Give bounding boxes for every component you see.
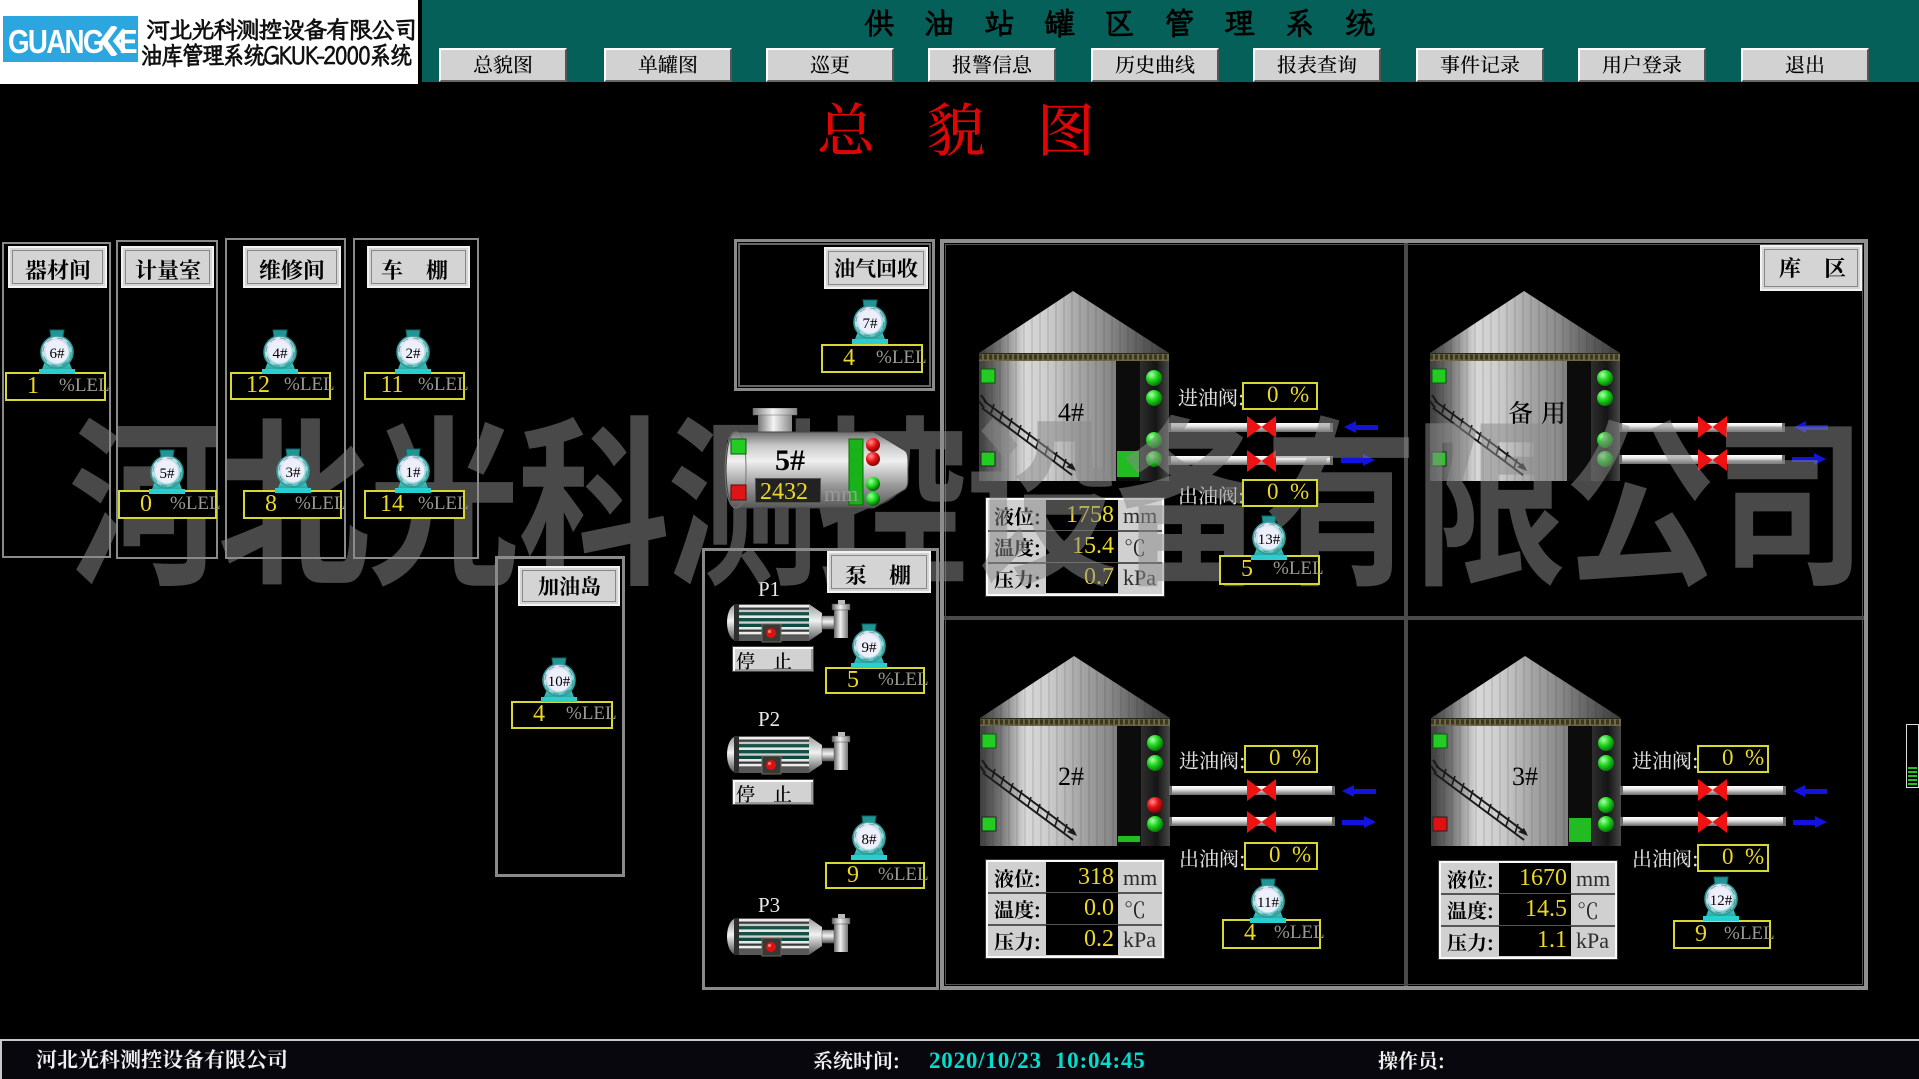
svg-text:12#: 12# — [1710, 893, 1733, 909]
svg-text:8#: 8# — [862, 832, 878, 848]
svg-text:7#: 7# — [863, 316, 879, 332]
svg-text:9#: 9# — [862, 640, 878, 656]
svg-text:11#: 11# — [1257, 895, 1279, 911]
svg-text:3#: 3# — [286, 465, 302, 481]
svg-text:13#: 13# — [1258, 532, 1281, 548]
svg-text:10#: 10# — [548, 674, 571, 690]
svg-text:1#: 1# — [406, 465, 422, 481]
svg-text:5#: 5# — [160, 466, 176, 482]
svg-text:2#: 2# — [406, 346, 422, 362]
svg-text:4#: 4# — [273, 346, 289, 362]
svg-text:6#: 6# — [50, 346, 66, 362]
